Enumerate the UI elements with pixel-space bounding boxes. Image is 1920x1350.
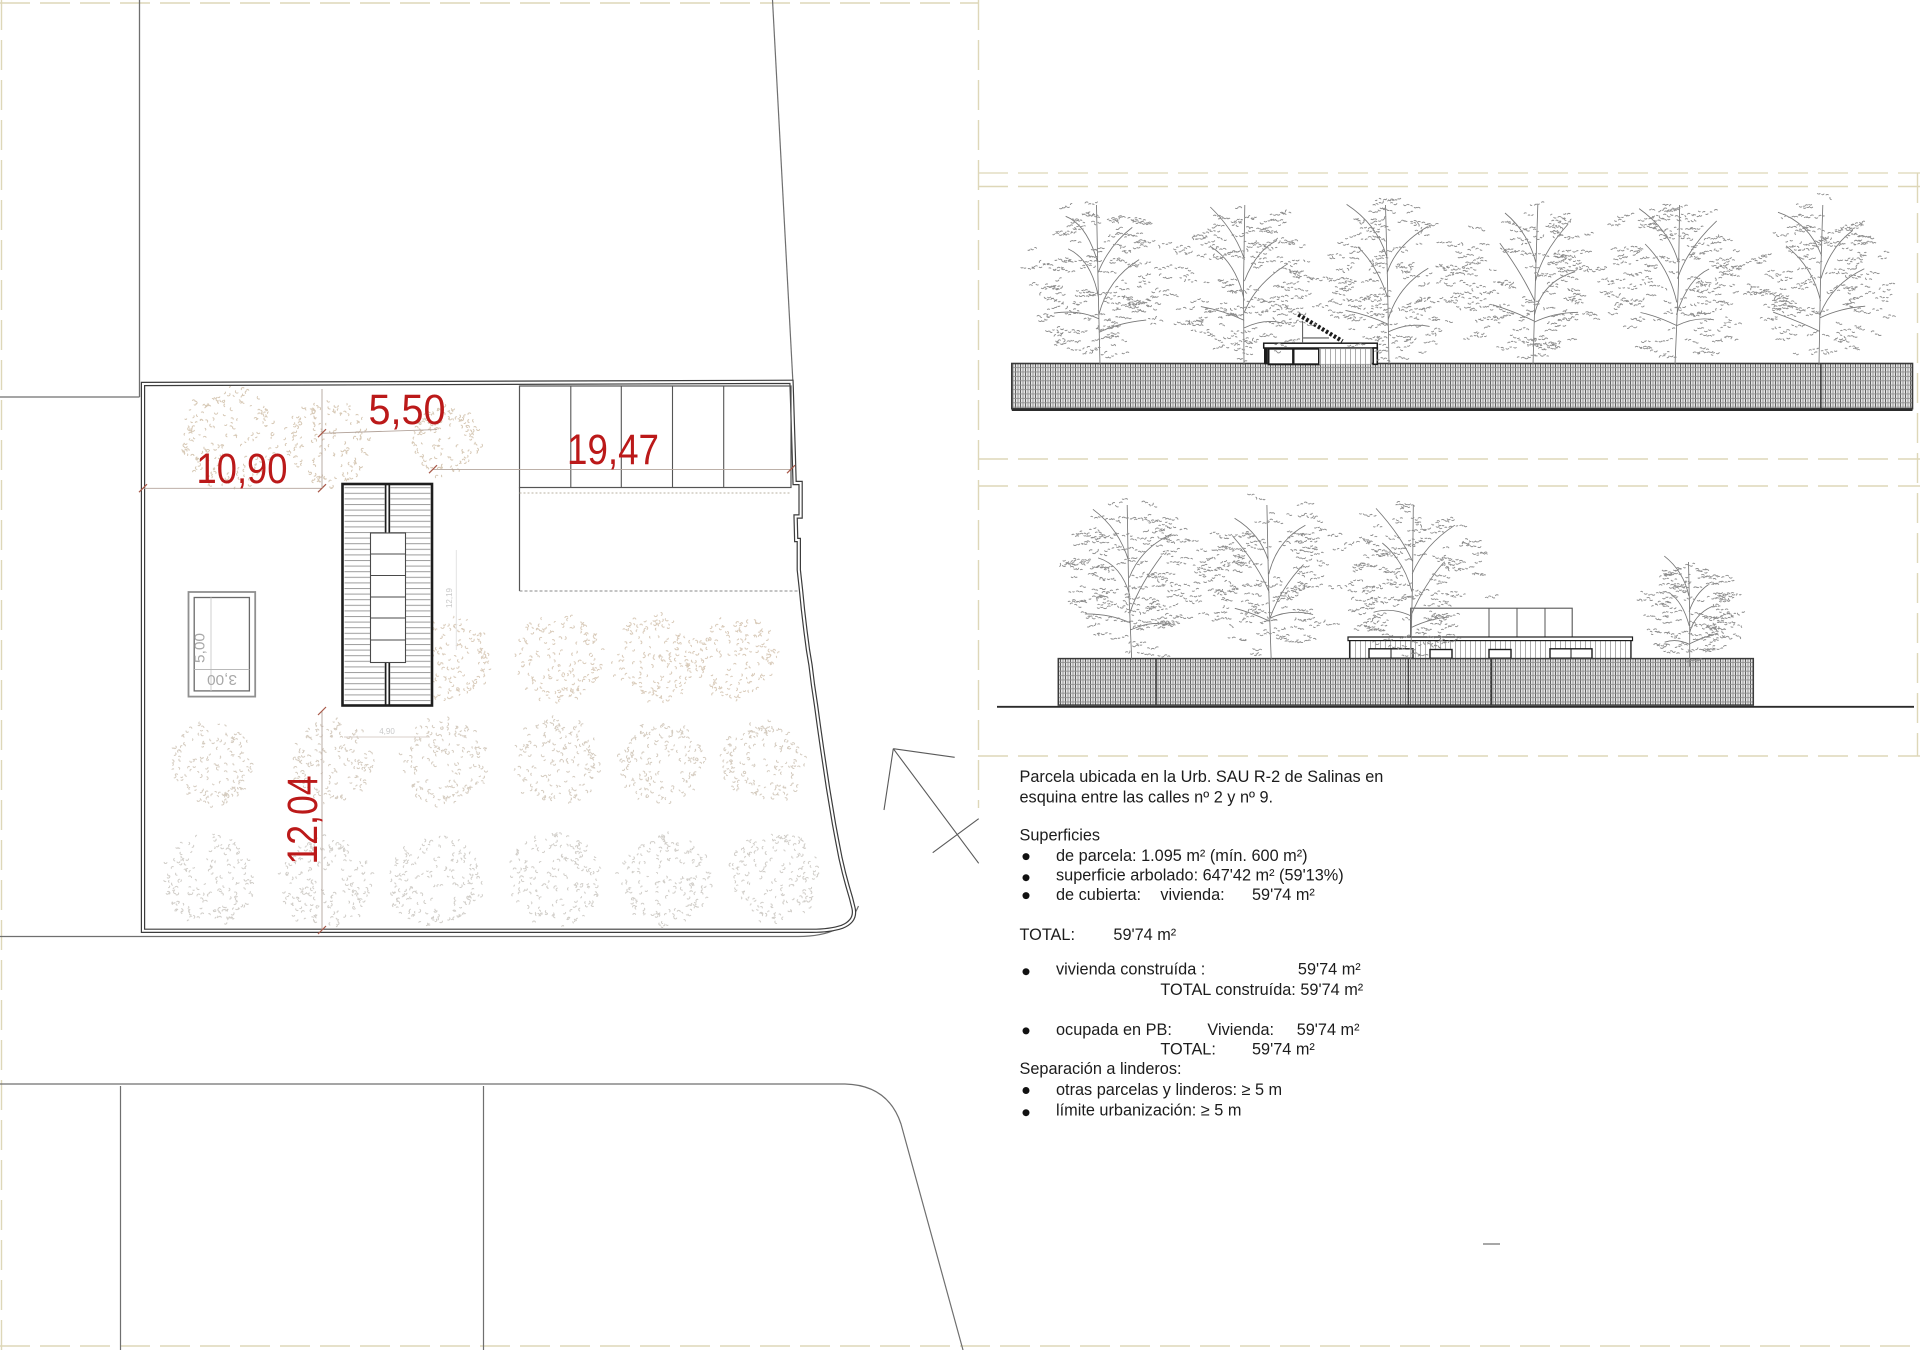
svg-text:Vivienda:: Vivienda: — [1207, 1021, 1274, 1039]
svg-text:vivienda:: vivienda: — [1160, 886, 1224, 904]
svg-text:5,00: 5,00 — [192, 633, 209, 663]
svg-text:59'74 m²: 59'74 m² — [1113, 926, 1176, 944]
svg-text:59'74 m²: 59'74 m² — [1297, 1021, 1360, 1039]
svg-text:12,19: 12,19 — [445, 587, 454, 608]
svg-text:ocupada en PB:: ocupada en PB: — [1056, 1021, 1172, 1039]
svg-text:59'74 m²: 59'74 m² — [1298, 961, 1361, 979]
svg-text:Parcela ubicada en la Urb. SAU: Parcela ubicada en la Urb. SAU R-2 de Sa… — [1020, 768, 1384, 786]
svg-text:Separación a linderos:: Separación a linderos: — [1020, 1060, 1182, 1078]
svg-text:19,47: 19,47 — [567, 426, 659, 474]
svg-text:esquina entre las calles nº 2: esquina entre las calles nº 2 y nº 9. — [1020, 789, 1274, 807]
svg-text:de cubierta:: de cubierta: — [1056, 886, 1141, 904]
svg-text:de parcela: 1.095 m² (mín. 600: de parcela: 1.095 m² (mín. 600 m²) — [1056, 847, 1308, 865]
svg-text:59'74 m²: 59'74 m² — [1252, 1041, 1315, 1059]
svg-text:12,04: 12,04 — [279, 776, 327, 865]
svg-text:TOTAL construída: 59'74 m²: TOTAL construída: 59'74 m² — [1160, 981, 1363, 999]
svg-text:otras parcelas y linderos: ≥ 5: otras parcelas y linderos: ≥ 5 m — [1056, 1081, 1282, 1099]
svg-text:superficie arbolado: 647'42 m²: superficie arbolado: 647'42 m² (59'13%) — [1056, 866, 1344, 884]
svg-text:TOTAL:: TOTAL: — [1160, 1041, 1216, 1059]
svg-text:vivienda construída :: vivienda construída : — [1056, 961, 1205, 979]
svg-text:4,90: 4,90 — [379, 727, 395, 736]
svg-text:5,50: 5,50 — [369, 386, 446, 434]
svg-text:3,00: 3,00 — [207, 671, 237, 688]
svg-text:10,90: 10,90 — [197, 445, 288, 493]
svg-text:59'74 m²: 59'74 m² — [1252, 886, 1315, 904]
svg-text:TOTAL:: TOTAL: — [1020, 926, 1076, 944]
svg-text:límite urbanización: ≥ 5 m: límite urbanización: ≥ 5 m — [1056, 1101, 1241, 1119]
svg-text:Superficies: Superficies — [1020, 826, 1101, 844]
